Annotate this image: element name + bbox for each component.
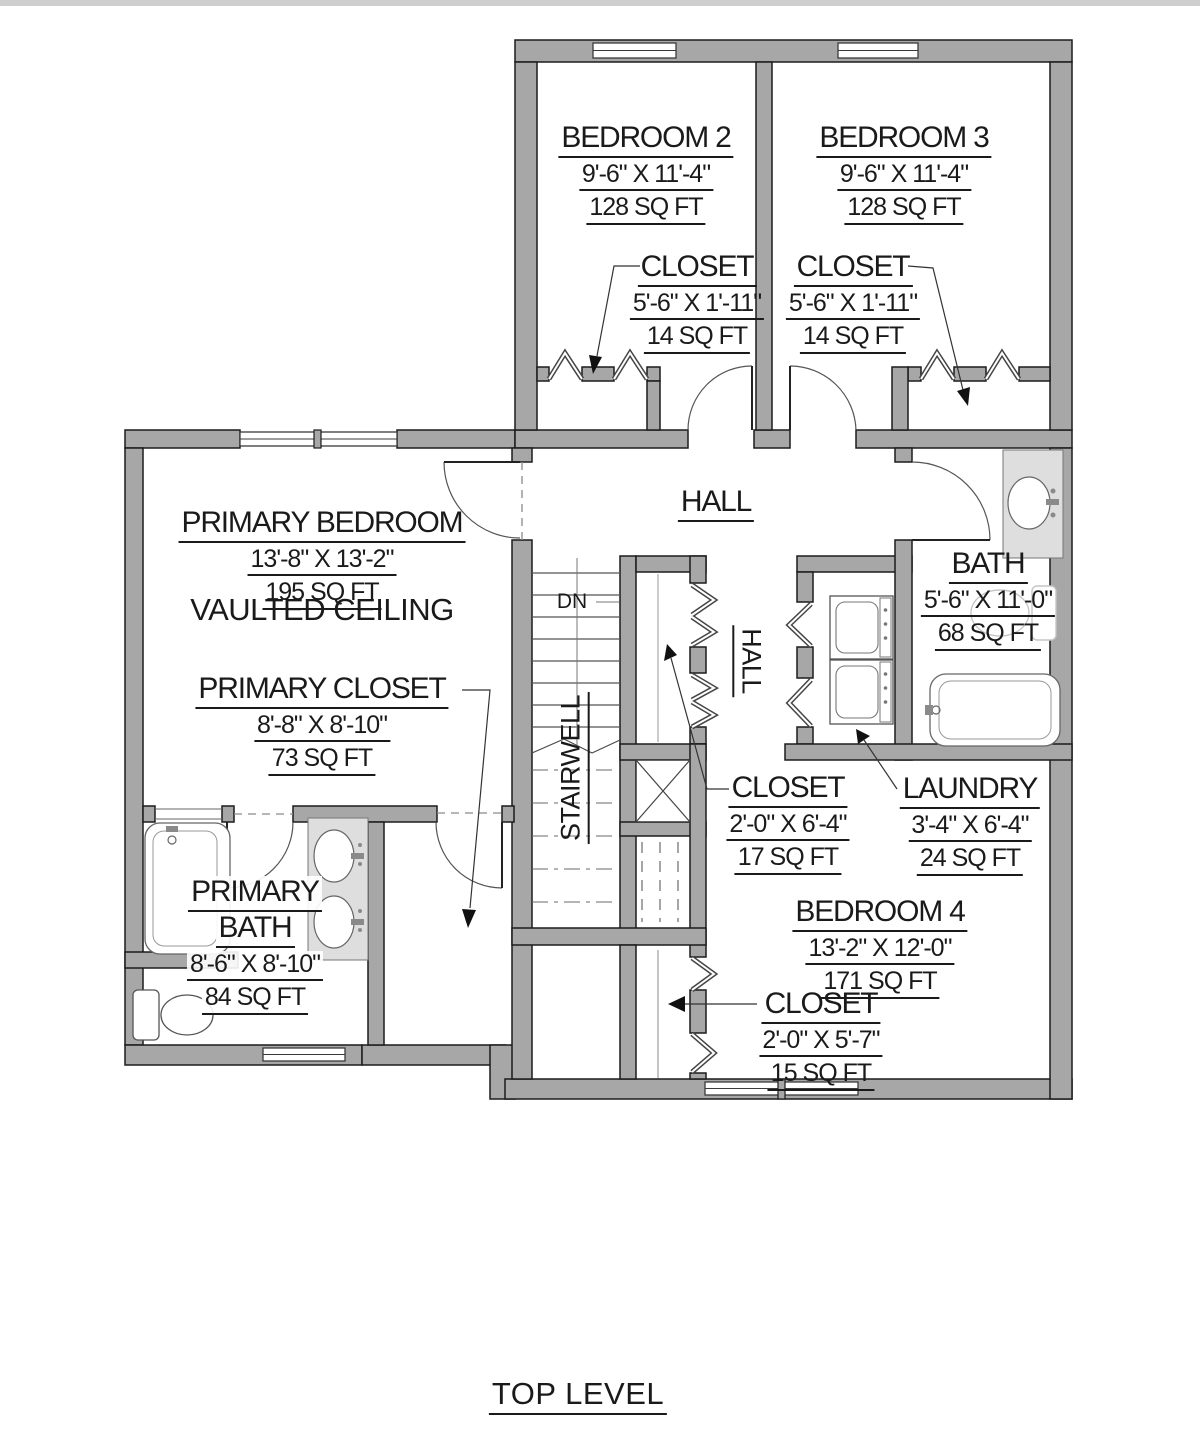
note-vaulted-ceiling: VAULTED CEILING <box>190 594 454 627</box>
arrow-icon <box>664 644 677 661</box>
page-title: TOP LEVEL <box>489 1378 667 1415</box>
room-label-bedroom3: BEDROOM 3 9'-6" X 11'-4" 128 SQ FT <box>816 122 991 225</box>
room-label-bath: BATH 5'-6" X 11'-0" 68 SQ FT <box>921 548 1055 651</box>
stairs-down-label: DN <box>557 591 587 613</box>
room-label-primary-bath: PRIMARY BATH 8'-6" X 8'-10" 84 SQ FT <box>187 876 323 1015</box>
room-label-bedroom4-closet: CLOSET 2'-0" X 5'-7" 15 SQ FT <box>759 988 882 1091</box>
room-label-hall-lower: HALL <box>733 625 766 697</box>
room-label-primary-closet: PRIMARY CLOSET 8'-8" X 8'-10" 73 SQ FT <box>195 673 448 776</box>
room-label-hall: HALL <box>678 486 754 522</box>
arrow-icon <box>462 909 476 928</box>
arrow-icon <box>957 387 970 406</box>
room-label-bedroom2: BEDROOM 2 9'-6" X 11'-4" 128 SQ FT <box>558 122 733 225</box>
room-label-bedroom4: BEDROOM 4 13'-2" X 12'-0" 171 SQ FT <box>792 896 967 999</box>
room-label-stairwell: STAIRWELL <box>557 692 590 844</box>
room-label-bedroom2-closet: CLOSET 5'-6" X 1'-11" 14 SQ FT <box>630 251 764 354</box>
page-edge <box>0 0 1200 6</box>
leader-primary-closet <box>462 690 490 908</box>
floor-plan-page: BEDROOM 2 9'-6" X 11'-4" 128 SQ FT BEDRO… <box>0 0 1200 1431</box>
room-label-bedroom3-closet: CLOSET 5'-6" X 1'-11" 14 SQ FT <box>786 251 920 354</box>
room-label-hall-closet: CLOSET 2'-0" X 6'-4" 17 SQ FT <box>726 772 849 875</box>
arrow-icon <box>668 996 685 1012</box>
laundry-appliances <box>830 596 893 724</box>
arrow-icon <box>856 729 870 744</box>
room-label-laundry: LAUNDRY 3'-4" X 6'-4" 24 SQ FT <box>900 773 1040 876</box>
